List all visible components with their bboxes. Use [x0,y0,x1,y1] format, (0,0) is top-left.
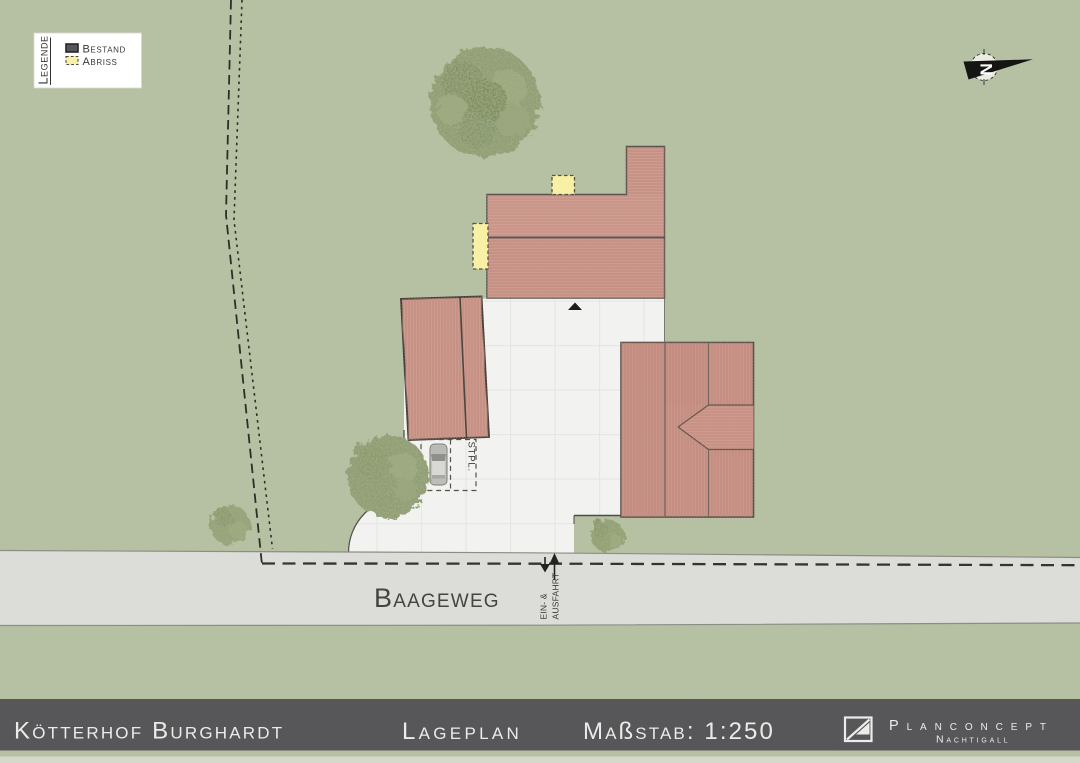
svg-text:Kötterhof Burghardt: Kötterhof Burghardt [14,718,284,745]
svg-text:N: N [977,63,996,75]
svg-text:STPL.: STPL. [466,442,477,472]
svg-text:Planconcept: Planconcept [889,718,1054,734]
svg-text:Maßstab: 1:250: Maßstab: 1:250 [583,718,775,745]
svg-text:Legende: Legende [37,35,51,84]
svg-text:Lageplan: Lageplan [402,718,522,745]
svg-text:Baageweg: Baageweg [374,583,500,613]
svg-text:Nachtigall: Nachtigall [936,734,1010,746]
svg-text:Bestand: Bestand [83,44,126,56]
svg-text:AUSFAHRT: AUSFAHRT [551,573,561,620]
svg-text:EIN- &: EIN- & [539,593,549,619]
svg-text:Abriss: Abriss [83,56,118,68]
